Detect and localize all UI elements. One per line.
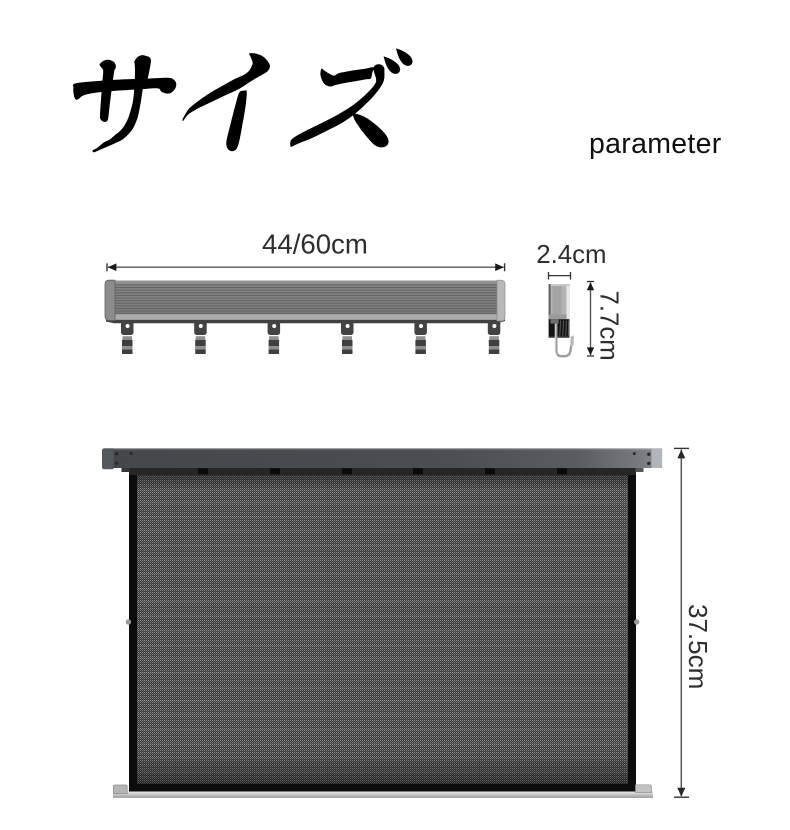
svg-text:37.5cm: 37.5cm bbox=[683, 604, 713, 689]
svg-text:44/60cm: 44/60cm bbox=[262, 229, 368, 260]
svg-text:7.7cm: 7.7cm bbox=[595, 291, 623, 361]
svg-text:2.4cm: 2.4cm bbox=[536, 241, 606, 269]
svg-text:parameter: parameter bbox=[589, 128, 722, 160]
